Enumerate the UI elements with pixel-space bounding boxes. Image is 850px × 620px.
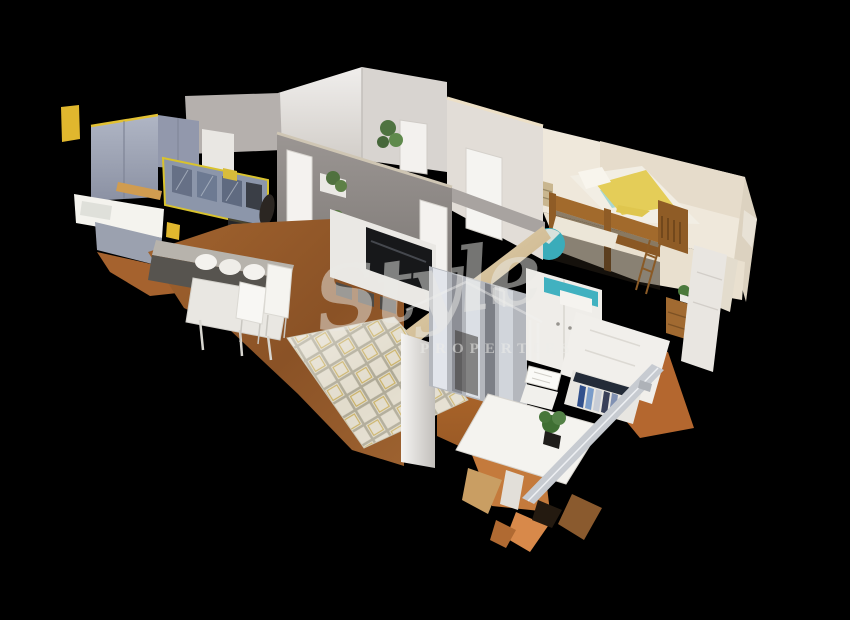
chair — [264, 264, 292, 318]
dollhouse-scan — [0, 0, 850, 620]
screenshot-frame: Style PROPERTIES — [0, 0, 850, 620]
hall-door-mid — [466, 148, 502, 240]
counter-yellow-bin — [166, 222, 180, 240]
mirror-dark-reflection — [455, 330, 478, 396]
glass-display-cabinet — [163, 158, 268, 228]
chair — [236, 282, 266, 324]
hall-door-top — [400, 120, 427, 174]
kitchen-yellow-cabinet — [61, 105, 80, 142]
